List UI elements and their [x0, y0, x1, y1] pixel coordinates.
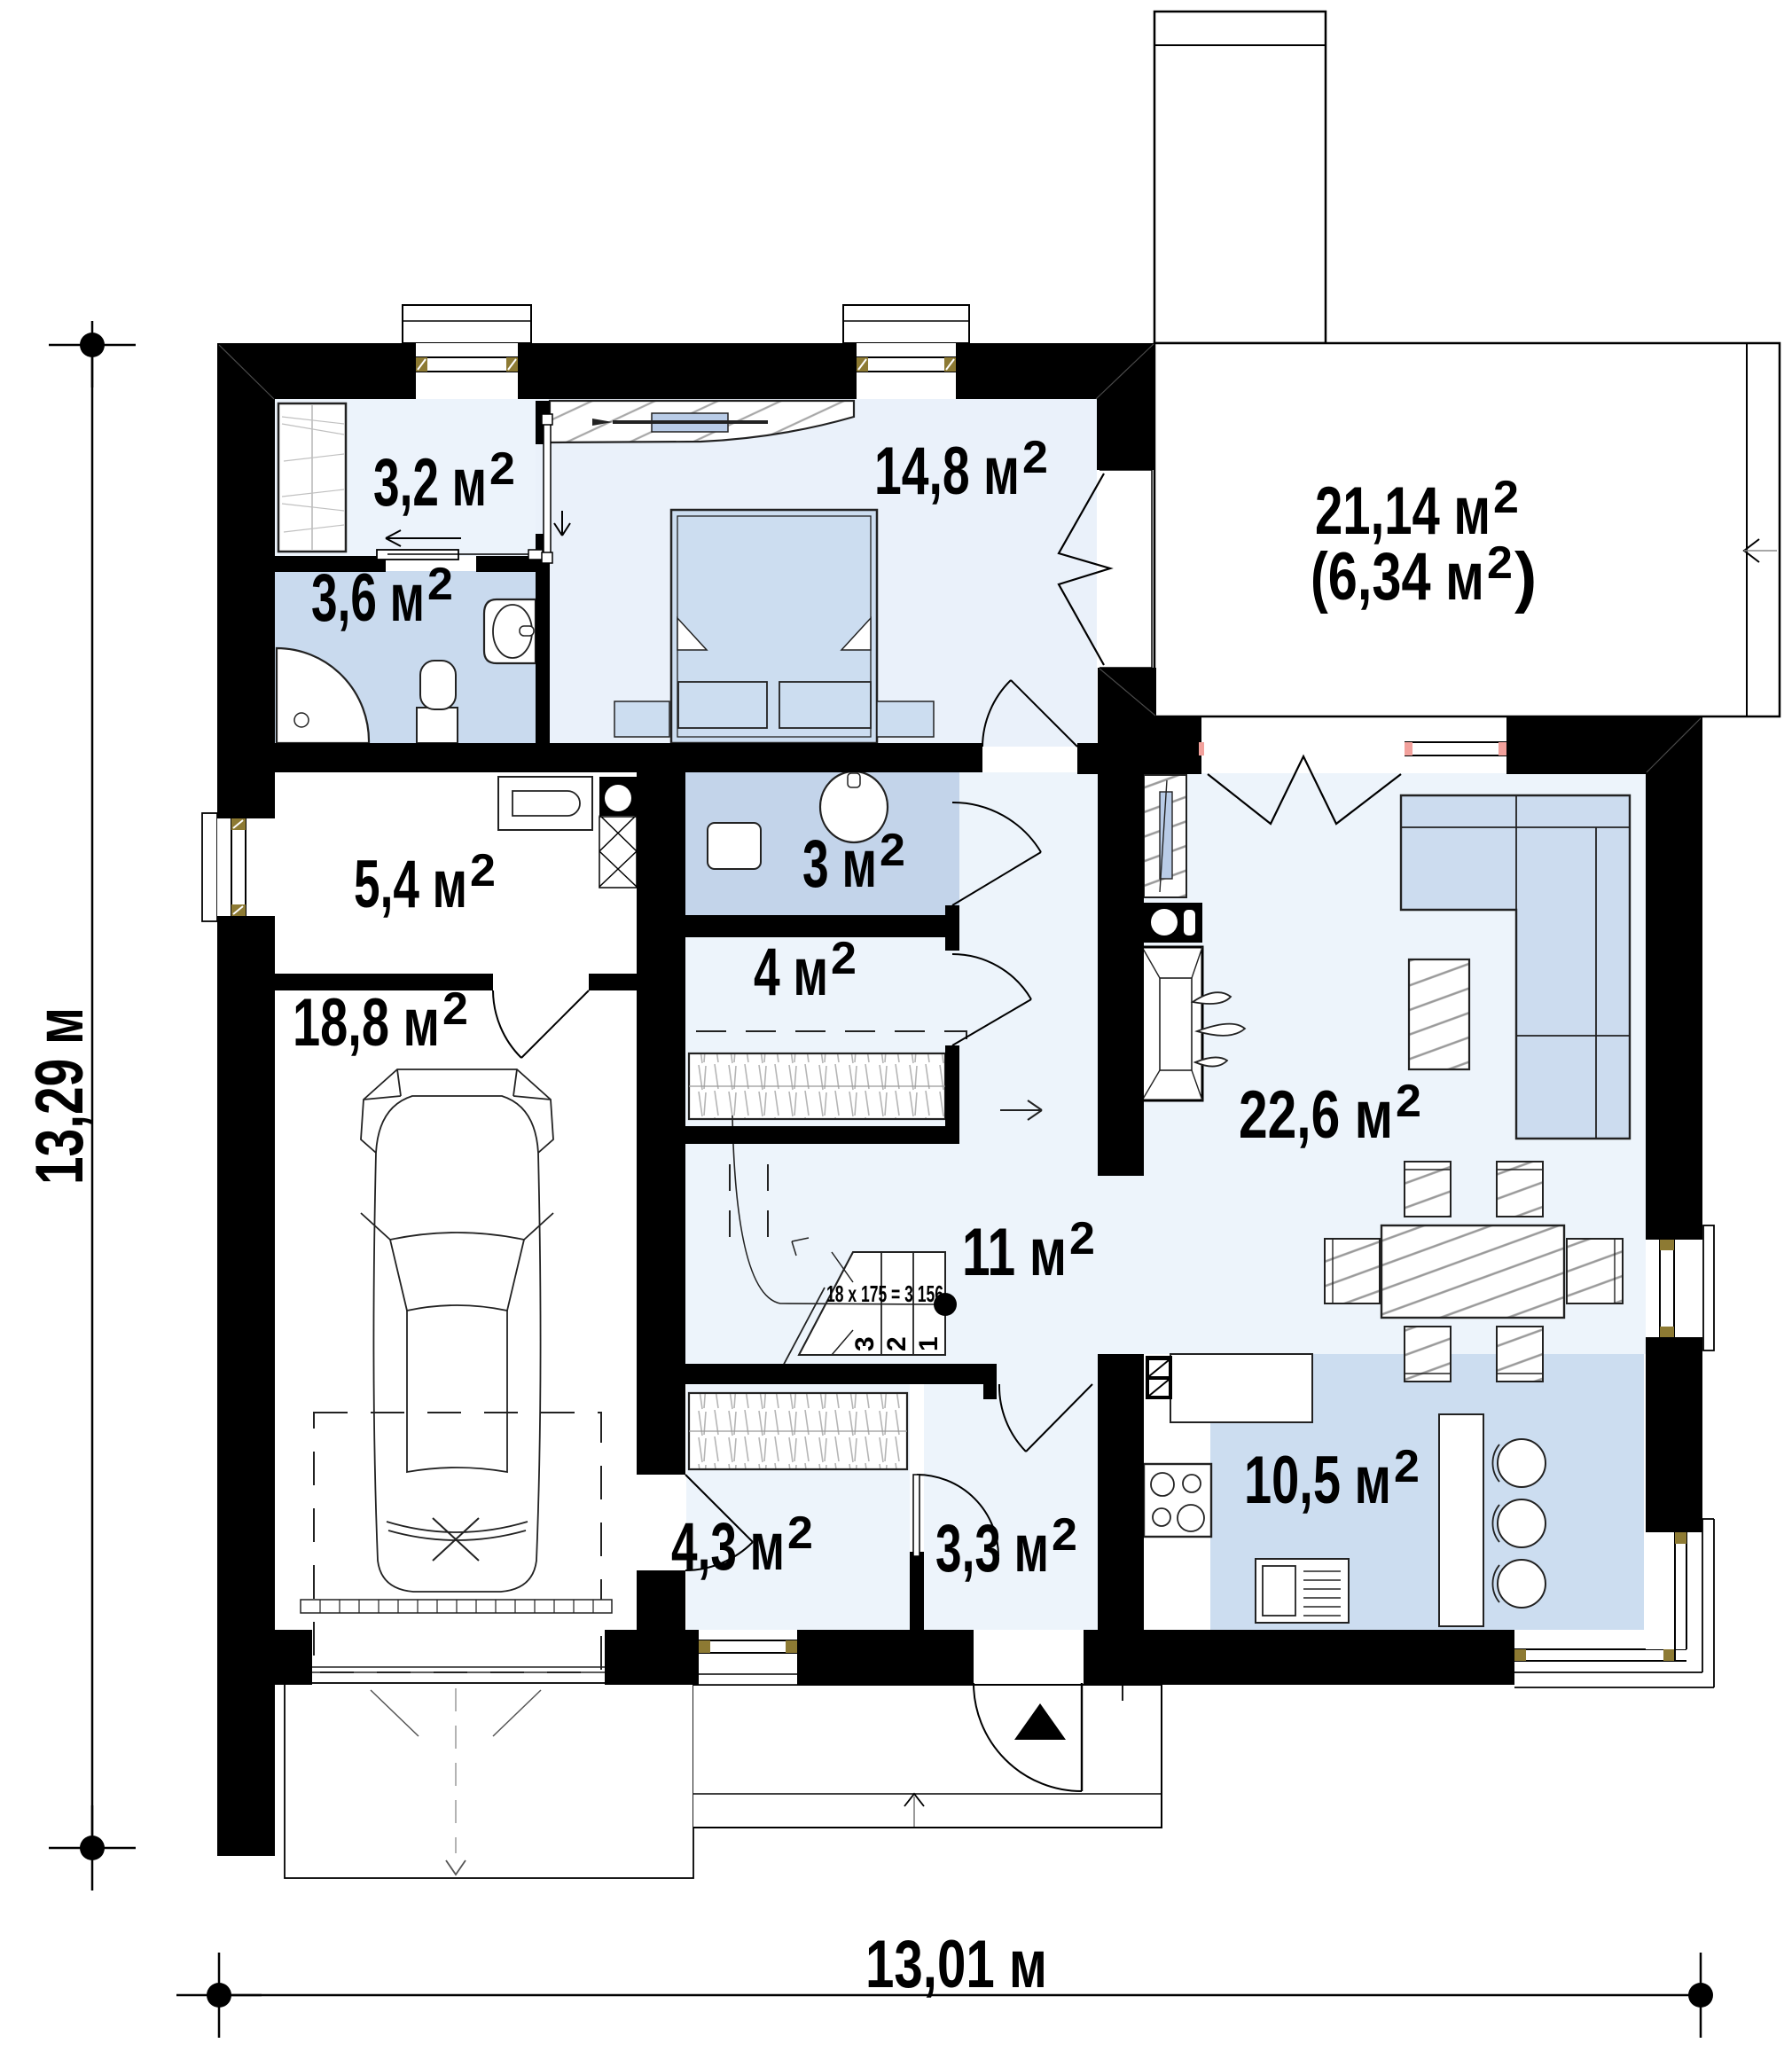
- svg-text:2: 2: [1022, 432, 1048, 483]
- svg-text:2: 2: [1069, 1213, 1095, 1264]
- svg-text:3,3 м: 3,3 м: [935, 1511, 1049, 1586]
- svg-text:2: 2: [427, 559, 453, 610]
- svg-text:18 x 175 = 3 156: 18 x 175 = 3 156: [826, 1280, 943, 1307]
- svg-text:2: 2: [1396, 1076, 1421, 1127]
- svg-text:(6,34 м: (6,34 м: [1311, 539, 1484, 615]
- svg-text:2: 2: [882, 1336, 912, 1351]
- svg-text:5,4 м: 5,4 м: [354, 847, 467, 922]
- svg-text:2: 2: [1493, 472, 1519, 523]
- svg-text:13,29 м: 13,29 м: [22, 1007, 98, 1185]
- svg-text:2: 2: [787, 1507, 813, 1559]
- svg-text:2: 2: [489, 443, 515, 495]
- svg-text:22,6 м: 22,6 м: [1239, 1077, 1393, 1153]
- svg-text:18,8 м: 18,8 м: [293, 985, 440, 1061]
- svg-text:4 м: 4 м: [754, 935, 828, 1010]
- svg-text:14,8 м: 14,8 м: [874, 434, 1020, 509]
- svg-text:3 м: 3 м: [802, 826, 877, 902]
- svg-text:2: 2: [470, 845, 496, 896]
- svg-text:): ): [1514, 539, 1537, 615]
- svg-text:3,2 м: 3,2 м: [373, 445, 487, 521]
- svg-text:2: 2: [831, 933, 857, 984]
- svg-text:2: 2: [442, 983, 468, 1035]
- svg-text:3: 3: [850, 1336, 880, 1351]
- svg-text:1: 1: [914, 1336, 943, 1351]
- svg-text:2: 2: [1052, 1509, 1077, 1561]
- svg-text:2: 2: [1394, 1441, 1420, 1492]
- svg-text:3,6 м: 3,6 м: [311, 560, 425, 636]
- svg-text:10,5 м: 10,5 м: [1244, 1443, 1391, 1518]
- svg-text:2: 2: [1487, 537, 1513, 589]
- svg-text:2: 2: [880, 825, 905, 876]
- svg-text:11 м: 11 м: [962, 1215, 1067, 1290]
- svg-text:13,01 м: 13,01 м: [865, 1927, 1047, 2002]
- svg-text:21,14 м: 21,14 м: [1315, 474, 1491, 549]
- svg-text:4,3 м: 4,3 м: [671, 1509, 785, 1585]
